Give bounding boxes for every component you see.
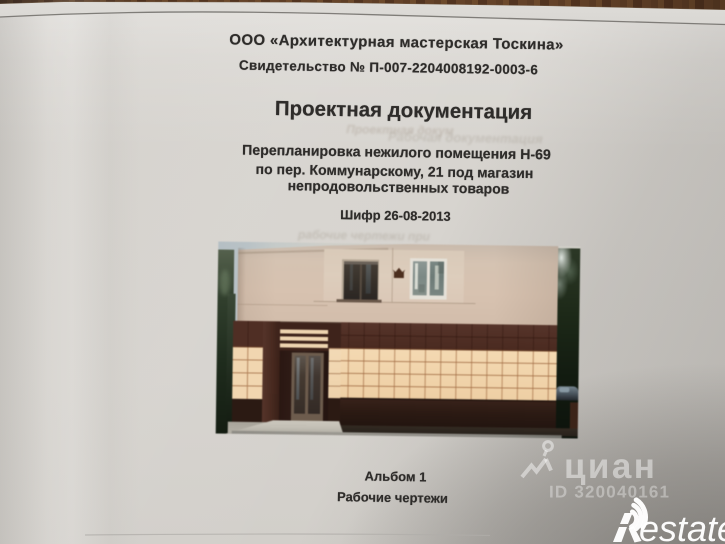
svg-text:estate: estate — [639, 508, 725, 544]
svg-text:циан: циан — [564, 447, 657, 486]
